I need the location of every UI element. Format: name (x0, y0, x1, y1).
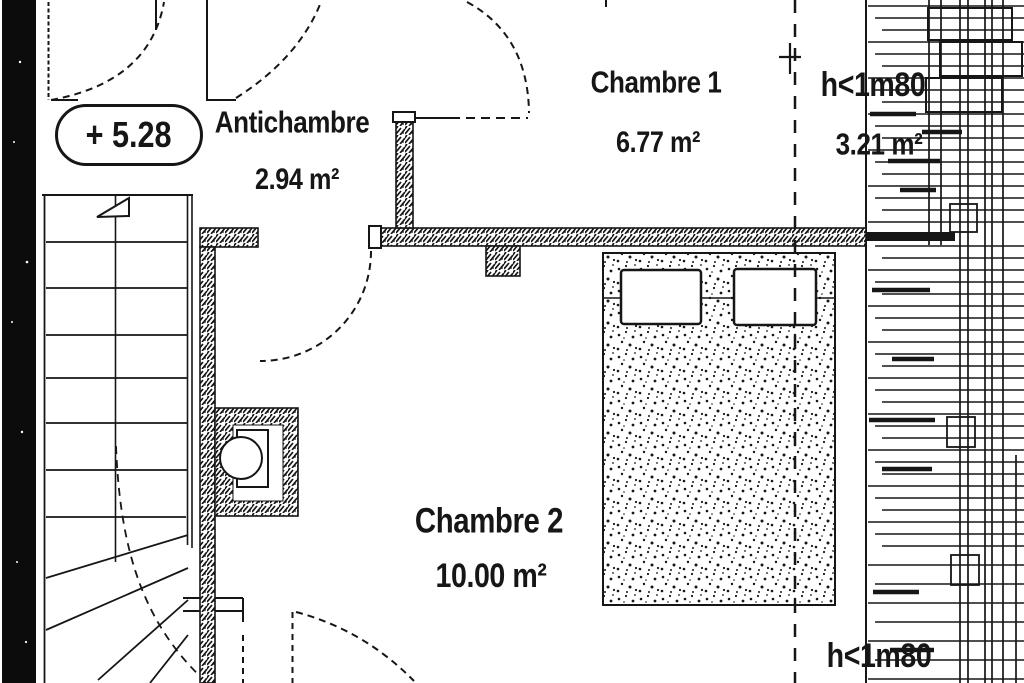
wall-stub-left (200, 228, 258, 247)
wall-vertical-left (200, 247, 215, 683)
door-arc-chambre2-top (260, 251, 371, 361)
room-label-antichambre: Antichambre (215, 107, 370, 138)
room-label-chambre2: Chambre 2 (415, 504, 563, 539)
door-arc-chambre1 (467, 2, 529, 113)
wall-end-cap (369, 226, 381, 248)
pillow (621, 270, 701, 324)
floor-plan: + 5.28 Antichambre 2.94 m² Chambre 1 6.7… (0, 0, 1024, 683)
roof-box-small (947, 417, 975, 447)
room-area-antichambre: 2.94 m² (255, 165, 339, 195)
wall-end-cap (393, 112, 415, 122)
stair-direction-arrow (97, 198, 129, 217)
section-cross-mark (779, 43, 801, 74)
door-arc-top-left (51, 2, 164, 100)
door-arc-bottom (296, 612, 414, 681)
chimney-flue-circle (220, 437, 262, 479)
level-value: + 5.28 (86, 114, 172, 156)
low-ceiling-area: 3.21 m² (836, 129, 923, 160)
roof-box (940, 42, 1022, 76)
level-marker: + 5.28 (55, 104, 203, 166)
top-wall-corner (51, 0, 606, 100)
room-area-chambre1: 6.77 m² (616, 128, 700, 158)
stair-walking-line (116, 446, 204, 680)
roof-box (926, 78, 1002, 112)
roof-hatch-ties (869, 114, 962, 650)
stair-winder-treads (46, 535, 188, 683)
roof-hatch-horizontals (868, 6, 1024, 679)
roof-box-small (950, 204, 977, 232)
low-ceiling-label-top: h<1m80 (821, 68, 926, 102)
exterior-wall-left (2, 0, 36, 683)
low-ceiling-label-bottom: h<1m80 (827, 639, 932, 673)
door-arc-antichambre (236, 2, 321, 98)
room-area-chambre2: 10.00 m² (436, 559, 547, 593)
wall-band-right (866, 232, 955, 241)
room-label-chambre1: Chambre 1 (591, 67, 722, 98)
roof-box-small (951, 555, 979, 585)
stairs (42, 195, 204, 683)
pillow (734, 269, 816, 325)
antichambre-wall (393, 112, 528, 228)
interior-walls (200, 228, 298, 683)
wall-stub-below (486, 246, 520, 276)
double-bed (603, 253, 835, 605)
